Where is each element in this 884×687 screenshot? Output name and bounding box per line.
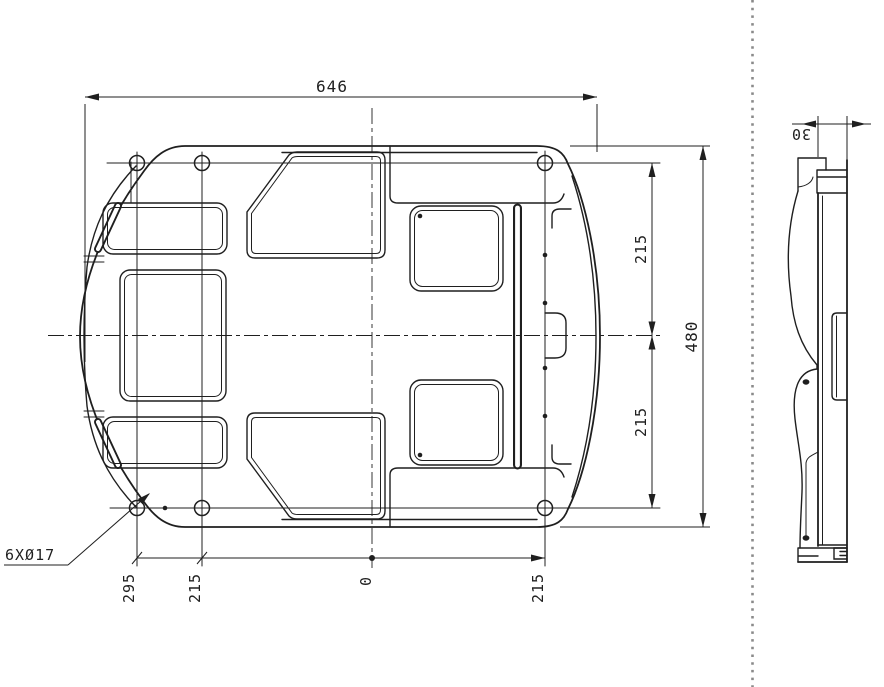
arrowhead [649,336,656,350]
arrowhead [649,494,656,508]
dimensions: 646 480 215 215 295 215 0 215 6XØ17 [4,77,710,603]
dim-offset-upper-label: 215 [632,234,650,264]
pocket-bottom-right-inner [415,385,499,461]
pocket-bottom-left-inner [108,422,223,464]
pocket-bottom-left [103,417,227,468]
arrowhead [852,121,866,128]
corner-steps [552,209,571,464]
pocket-bottom-center [247,413,385,519]
arrowhead [700,513,707,527]
side-bottom-notch [834,548,847,559]
pocket-top-right [410,206,503,291]
ordinate-215-right-label: 215 [529,573,547,603]
arrowhead [583,94,597,101]
pocket-top-right-inner [415,211,499,287]
ordinate-zero-label: 0 [357,576,375,586]
ordinate-215-left-label: 215 [186,573,204,603]
arrowhead [85,94,99,101]
pocket-top-left-inner [108,208,223,250]
rivet-dot [418,453,423,458]
side-step-fillet [798,177,813,187]
dim-thickness-label: 30 [791,125,811,143]
bottom-right-block-edge [390,468,564,527]
rivet-dot [418,214,423,219]
pocket-top-center [247,152,385,258]
arrowhead [531,555,545,562]
side-hole-dot [803,535,810,540]
dim-offset-lower-label: 215 [632,407,650,437]
pocket-top-left [103,203,227,254]
arrowhead [700,146,707,160]
dim-height-label: 480 [682,321,701,353]
arrowhead [649,163,656,177]
pocket-top-center-inner [252,157,381,254]
right-inner-wall [572,176,596,497]
pocket-bottom-center-inner [252,418,381,515]
top-right-block-edge [390,146,564,203]
hole-callout-label: 6XØ17 [5,546,55,564]
side-top-flange [817,170,847,193]
ordinate-origin-dot [369,555,375,561]
side-view: 30 [788,116,871,562]
drawing-page: 646 480 215 215 295 215 0 215 6XØ17 [0,0,884,687]
ordinate-295-label: 295 [120,573,138,603]
pocket-bottom-right [410,380,503,465]
dim-width-label: 646 [316,77,348,96]
arrowhead [649,322,656,336]
side-hole-dot [803,379,810,384]
side-left-profile [788,191,817,548]
hole-extension-lines [137,151,545,566]
side-lower-column [806,452,818,540]
engineering-drawing: 646 480 215 215 295 215 0 215 6XØ17 [0,0,884,687]
side-right-boss [832,313,846,400]
